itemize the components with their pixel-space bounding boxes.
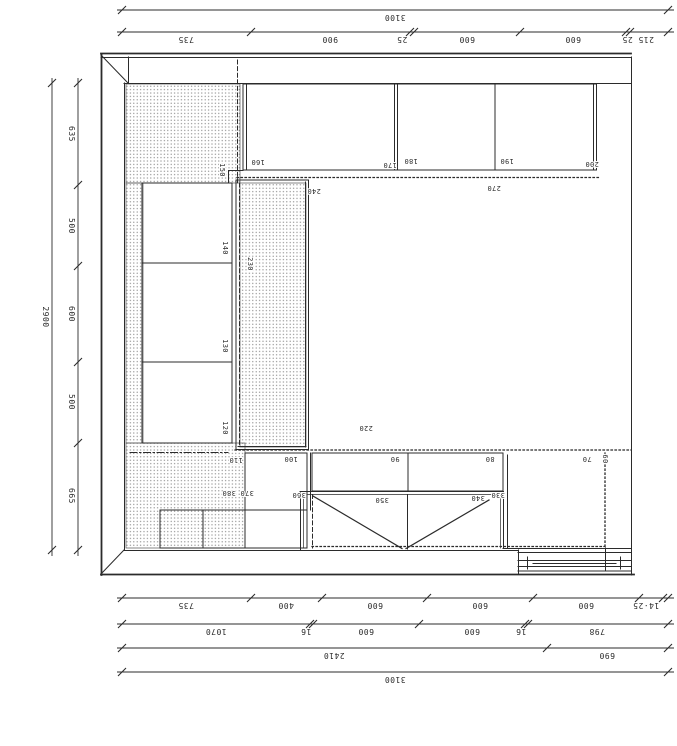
dim-label: 400 — [278, 601, 294, 610]
dimension-bottom-row1: 73540060060060014·25 — [117, 594, 674, 610]
plan-label-190: 190 — [500, 157, 514, 165]
plan-label-380: 380 — [222, 489, 236, 497]
plan-label-100: 100 — [284, 455, 298, 463]
plan-label-150: 150 — [218, 163, 226, 177]
dim-label: 500 — [67, 218, 76, 234]
plan-label-160: 160 — [251, 158, 265, 166]
dim-label: 3100 — [384, 13, 405, 22]
open-floor-area — [507, 455, 605, 548]
plan-label-120: 120 — [221, 421, 229, 435]
dim-label: 2410 — [323, 651, 344, 660]
plan-label-130: 130 — [221, 339, 229, 353]
plan-label-90: 90 — [390, 455, 399, 463]
cabinet-box — [142, 263, 232, 362]
cabinet-box — [142, 362, 232, 443]
dim-label: 16 — [516, 627, 527, 636]
dim-label: 735 — [178, 35, 194, 44]
plan-label-370: 370 — [240, 489, 254, 497]
plan-label-80: 80 — [485, 455, 494, 463]
plan-label-180: 180 — [404, 157, 418, 165]
dim-label: 600 — [358, 627, 374, 636]
dim-label: 2900 — [41, 306, 50, 327]
plan-label-360: 360 — [292, 491, 306, 499]
plan-label-270: 270 — [487, 184, 501, 192]
dim-label: 600 — [367, 601, 383, 610]
dim-label: 600 — [464, 627, 480, 636]
dim-label: 215 25 — [622, 35, 654, 44]
plan-label-340: 340 — [471, 494, 485, 502]
plan-label-170: 170 — [383, 161, 397, 169]
dim-label: 600 — [565, 35, 581, 44]
dimension-bottom-row2: 10701660060016798 — [117, 620, 674, 636]
floor-plan-drawing: 310073590025600600215 252900635500600500… — [0, 0, 677, 746]
plan-label-110: 110 — [229, 456, 243, 464]
dim-label: 1070 — [205, 627, 226, 636]
wall-cabinet-run — [243, 84, 597, 170]
plan-label-200: 200 — [585, 160, 599, 168]
dim-label: 600 — [472, 601, 488, 610]
dimension-left-segments: 635500600500665 — [67, 78, 82, 556]
wall-corner-miter-top-left — [101, 55, 128, 83]
dim-label: 3100 — [384, 675, 405, 684]
dim-label: 14·25 — [633, 601, 660, 610]
dim-label: 798 — [589, 627, 605, 636]
dim-label: 635 — [67, 126, 76, 142]
cabinet-box — [142, 183, 232, 263]
plan-label-220: 220 — [359, 424, 373, 432]
wall-cabinets-top — [243, 84, 597, 170]
plan-label-60: 60 — [601, 454, 609, 463]
dim-label: 16 — [301, 627, 312, 636]
dim-label: 25 — [397, 35, 408, 44]
dimension-left-overall: 2900 — [41, 78, 56, 556]
plan-label-330: 330 — [491, 491, 505, 499]
dim-label: 665 — [67, 488, 76, 504]
plan-label-350: 350 — [375, 496, 389, 504]
dim-label: 600 — [459, 35, 475, 44]
stipple-peninsula — [240, 183, 306, 447]
window-bottom-right — [518, 553, 631, 572]
plan-label-240: 240 — [307, 187, 321, 195]
dimension-bottom-row3: 2410690 — [117, 644, 674, 660]
dimension-bottom-row4: 3100 — [117, 668, 674, 684]
wall-corner-miter-bottom-left — [101, 550, 124, 574]
plan-label-70: 70 — [582, 455, 591, 463]
diagonal-door-swing — [406, 500, 489, 549]
plan-label-230: 230 — [246, 257, 254, 271]
dim-label: 690 — [599, 651, 615, 660]
floor-plan-page: 310073590025600600215 252900635500600500… — [0, 0, 677, 746]
plan-label-140: 140 — [221, 241, 229, 255]
dimension-top-segments: 73590025600600215 25 — [117, 28, 674, 44]
cabinet-box — [245, 510, 307, 548]
dim-label: 600 — [578, 601, 594, 610]
dim-label: 735 — [178, 601, 194, 610]
dim-label: 600 — [67, 306, 76, 322]
tall-cabinets-left — [142, 183, 232, 443]
stipple-left-strip — [126, 183, 143, 443]
dimension-top-overall: 3100 — [117, 6, 674, 22]
dim-label: 500 — [67, 394, 76, 410]
dim-label: 900 — [322, 35, 338, 44]
